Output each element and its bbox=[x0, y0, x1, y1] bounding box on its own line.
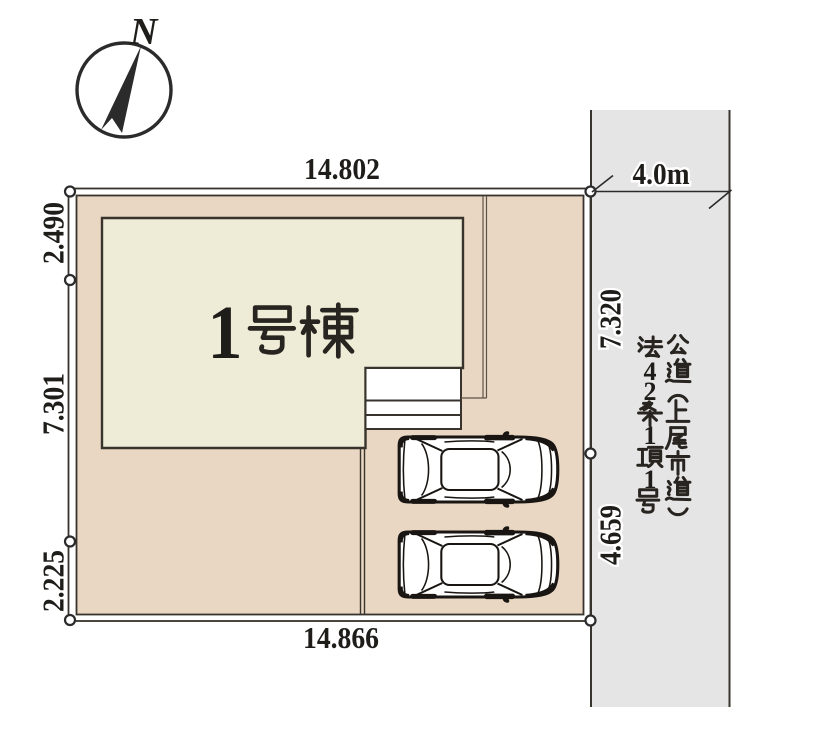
svg-text:N: N bbox=[129, 11, 159, 53]
svg-text:1: 1 bbox=[208, 290, 243, 374]
svg-text:14.802: 14.802 bbox=[304, 151, 380, 186]
svg-text:4.659: 4.659 bbox=[593, 505, 628, 565]
svg-text:2: 2 bbox=[644, 377, 657, 406]
svg-text:2.490: 2.490 bbox=[36, 202, 71, 264]
svg-text:7.301: 7.301 bbox=[36, 373, 71, 435]
svg-text:4.0m: 4.0m bbox=[633, 156, 690, 191]
svg-text:2.225: 2.225 bbox=[36, 550, 71, 612]
svg-text:14.866: 14.866 bbox=[303, 620, 379, 655]
svg-text:7.320: 7.320 bbox=[593, 289, 628, 349]
svg-text:1: 1 bbox=[644, 421, 657, 450]
svg-text:1: 1 bbox=[644, 465, 657, 494]
